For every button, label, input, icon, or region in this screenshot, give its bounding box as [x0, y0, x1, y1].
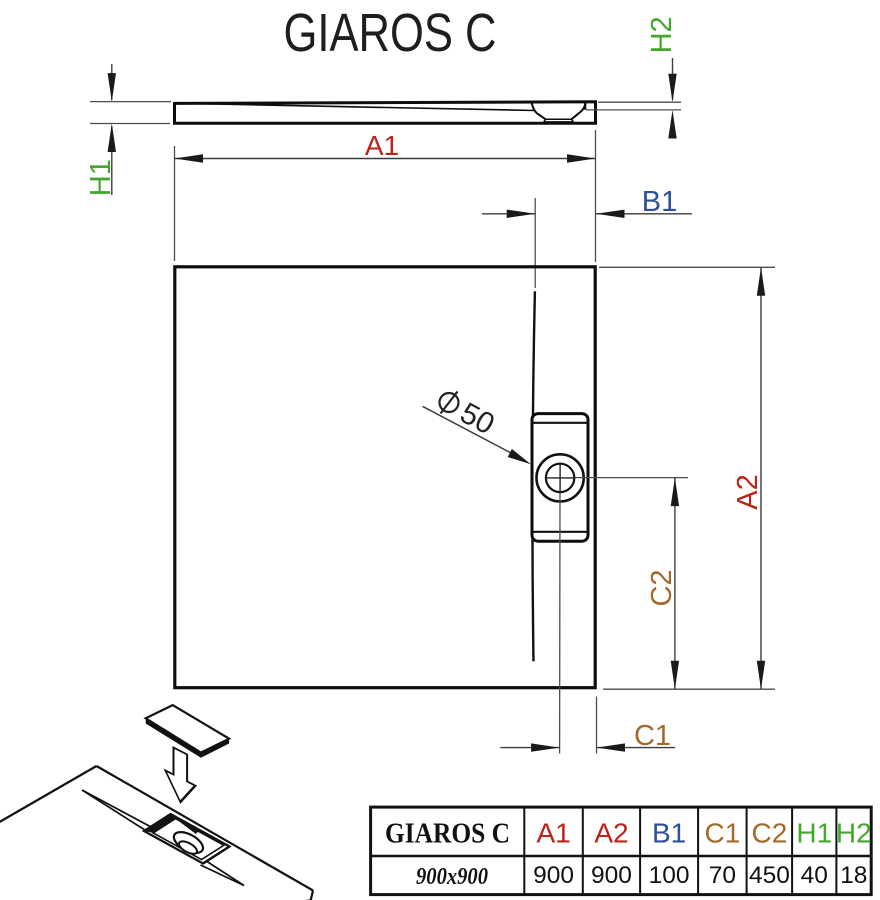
- svg-text:900: 900: [533, 862, 574, 889]
- svg-text:GIAROS C: GIAROS C: [284, 3, 497, 63]
- svg-text:40: 40: [801, 862, 828, 889]
- svg-text:C1: C1: [634, 720, 671, 752]
- svg-text:GIAROS C: GIAROS C: [385, 818, 510, 849]
- svg-text:C1: C1: [705, 817, 741, 848]
- svg-text:C2: C2: [646, 569, 678, 606]
- svg-text:H2: H2: [836, 817, 872, 848]
- svg-text:450: 450: [749, 862, 790, 889]
- svg-text:H2: H2: [646, 16, 678, 53]
- svg-text:H1: H1: [85, 159, 117, 196]
- svg-text:C2: C2: [752, 817, 788, 848]
- svg-text:A1: A1: [536, 817, 570, 848]
- svg-text:100: 100: [649, 862, 690, 889]
- svg-text:18: 18: [840, 862, 867, 889]
- svg-text:A2: A2: [732, 474, 764, 509]
- svg-text:H1: H1: [796, 817, 832, 848]
- svg-text:B1: B1: [642, 186, 677, 218]
- svg-text:900x900: 900x900: [416, 863, 488, 890]
- svg-text:A2: A2: [594, 817, 628, 848]
- svg-text:70: 70: [709, 862, 736, 889]
- svg-text:A1: A1: [365, 130, 399, 161]
- svg-text:900: 900: [591, 862, 632, 889]
- svg-text:B1: B1: [652, 817, 686, 848]
